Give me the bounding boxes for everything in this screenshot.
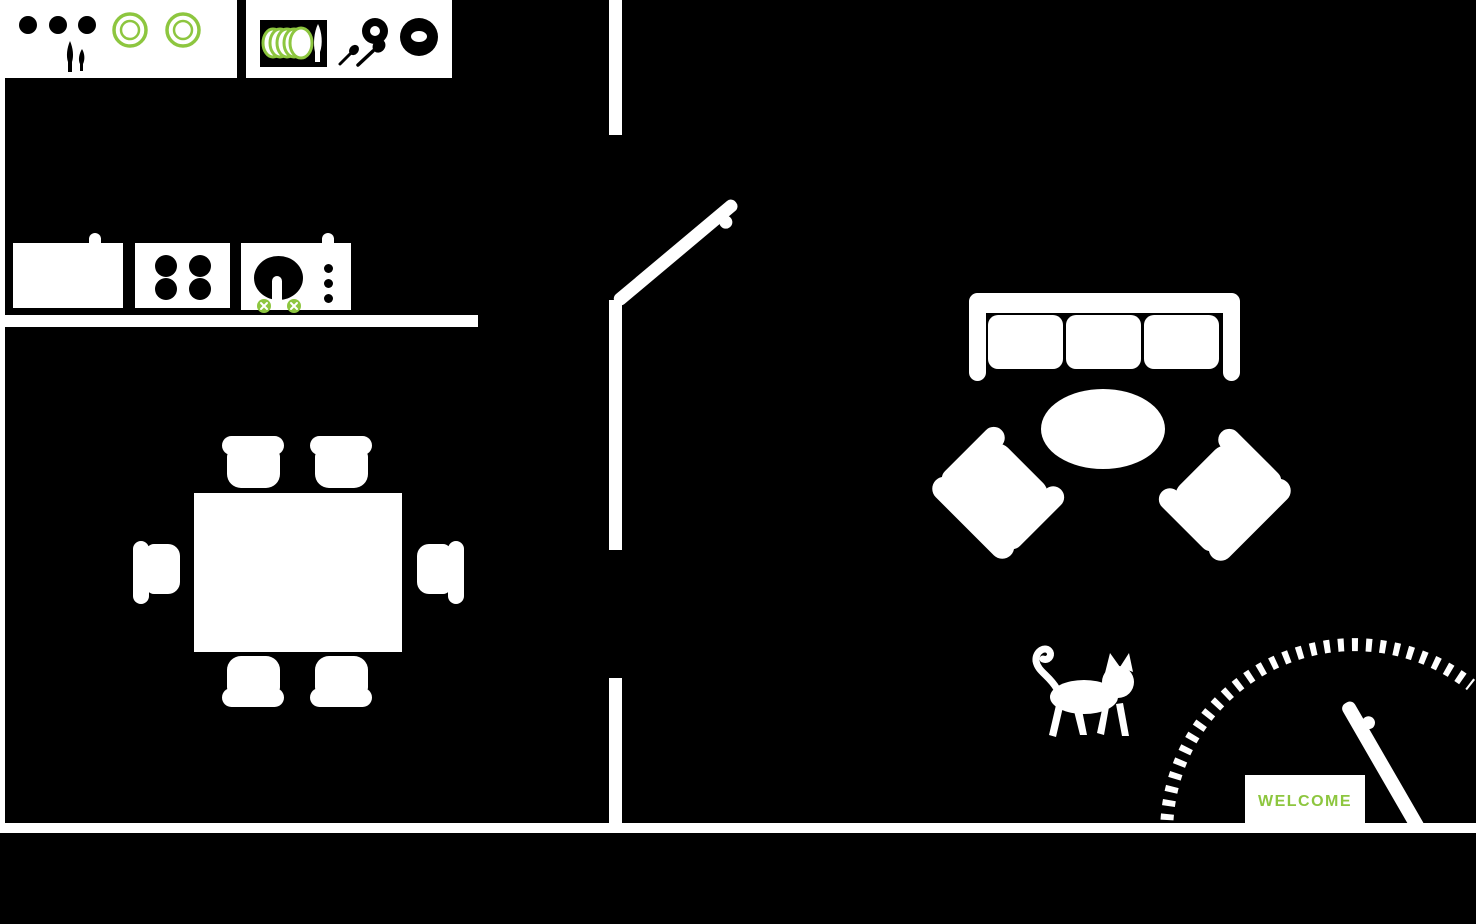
welcome-mat-label: WELCOME — [1245, 775, 1365, 828]
floor-plan: WELCOME — [0, 0, 1476, 924]
welcome-mat: WELCOME — [1245, 775, 1365, 828]
